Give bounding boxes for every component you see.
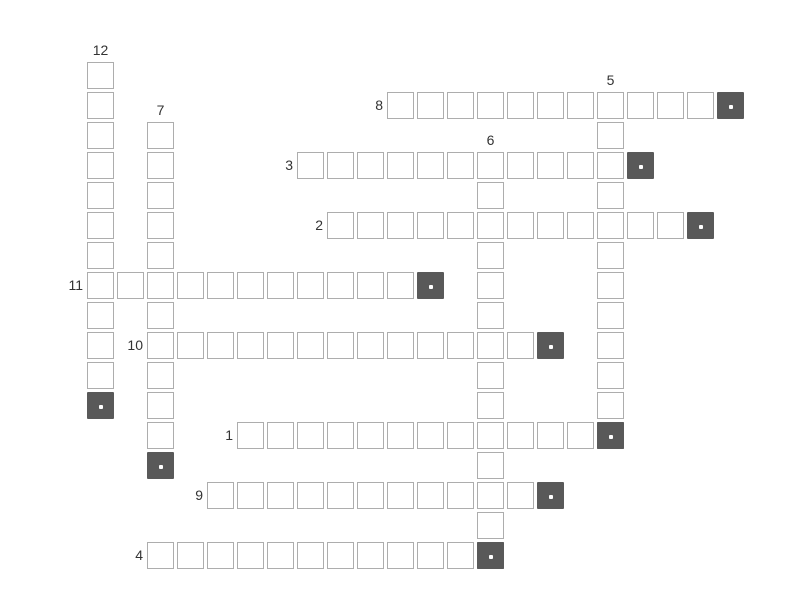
word-7-letter-cell-5[interactable] (147, 242, 174, 269)
word-7-letter-cell-3[interactable] (147, 182, 174, 209)
word-6-letter-cell-8[interactable] (477, 362, 504, 389)
word-1-letter-cell-2[interactable] (267, 422, 294, 449)
word-8-end-marker[interactable] (717, 92, 744, 119)
word-6-letter-cell-3[interactable] (477, 212, 504, 239)
word-8-letter-cell-3[interactable] (447, 92, 474, 119)
word-3-letter-cell-6[interactable] (447, 152, 474, 179)
end-marker-dot-icon (489, 555, 493, 559)
word-10-letter-cell-5[interactable] (267, 332, 294, 359)
clue-number-4: 4 (111, 542, 143, 569)
word-5-letter-cell-4[interactable] (597, 182, 624, 209)
word-9-letter-cell-6[interactable] (357, 482, 384, 509)
word-10-letter-cell-2[interactable] (177, 332, 204, 359)
word-11-letter-cell-2[interactable] (117, 272, 144, 299)
word-8-letter-cell-6[interactable] (537, 92, 564, 119)
clue-number-1: 1 (201, 422, 233, 449)
word-1-letter-cell-3[interactable] (297, 422, 324, 449)
word-6-letter-cell-4[interactable] (477, 242, 504, 269)
word-10-letter-cell-6[interactable] (297, 332, 324, 359)
word-10-letter-cell-8[interactable] (357, 332, 384, 359)
word-3-letter-cell-9[interactable] (537, 152, 564, 179)
word-7-letter-cell-11[interactable] (147, 422, 174, 449)
word-12-letter-cell-5[interactable] (87, 182, 114, 209)
word-8-letter-cell-2[interactable] (417, 92, 444, 119)
word-7-letter-cell-1[interactable] (147, 122, 174, 149)
word-7-letter-cell-9[interactable] (147, 362, 174, 389)
word-9-letter-cell-3[interactable] (267, 482, 294, 509)
word-9-letter-cell-5[interactable] (327, 482, 354, 509)
word-6-letter-cell-9[interactable] (477, 392, 504, 419)
word-11-letter-cell-8[interactable] (297, 272, 324, 299)
word-6-end-marker[interactable] (477, 542, 504, 569)
word-1-letter-cell-11[interactable] (537, 422, 564, 449)
word-3-letter-cell-2[interactable] (327, 152, 354, 179)
word-9-end-marker[interactable] (537, 482, 564, 509)
word-1-letter-cell-10[interactable] (507, 422, 534, 449)
word-11-letter-cell-9[interactable] (327, 272, 354, 299)
clue-number-7: 7 (147, 101, 174, 119)
word-4-letter-cell-8[interactable] (357, 542, 384, 569)
word-1-letter-cell-6[interactable] (387, 422, 414, 449)
word-12-letter-cell-7[interactable] (87, 242, 114, 269)
word-2-letter-cell-1[interactable] (327, 212, 354, 239)
word-5-letter-cell-7[interactable] (597, 272, 624, 299)
word-7-letter-cell-2[interactable] (147, 152, 174, 179)
word-6-letter-cell-1[interactable] (477, 152, 504, 179)
word-5-letter-cell-8[interactable] (597, 302, 624, 329)
word-4-letter-cell-10[interactable] (417, 542, 444, 569)
clue-number-5: 5 (597, 71, 624, 89)
word-1-letter-cell-8[interactable] (447, 422, 474, 449)
word-9-letter-cell-8[interactable] (417, 482, 444, 509)
end-marker-dot-icon (549, 495, 553, 499)
word-10-letter-cell-1[interactable] (147, 332, 174, 359)
end-marker-dot-icon (159, 465, 163, 469)
word-5-letter-cell-3[interactable] (597, 152, 624, 179)
word-3-letter-cell-10[interactable] (567, 152, 594, 179)
word-11-letter-cell-10[interactable] (357, 272, 384, 299)
word-8-letter-cell-5[interactable] (507, 92, 534, 119)
word-2-end-marker[interactable] (687, 212, 714, 239)
word-9-letter-cell-11[interactable] (507, 482, 534, 509)
word-3-end-marker[interactable] (627, 152, 654, 179)
word-4-letter-cell-4[interactable] (237, 542, 264, 569)
word-12-letter-cell-2[interactable] (87, 92, 114, 119)
word-7-letter-cell-4[interactable] (147, 212, 174, 239)
word-12-letter-cell-3[interactable] (87, 122, 114, 149)
word-10-letter-cell-12[interactable] (477, 332, 504, 359)
clue-number-11: 11 (51, 272, 83, 299)
word-1-letter-cell-1[interactable] (237, 422, 264, 449)
word-4-letter-cell-9[interactable] (387, 542, 414, 569)
word-3-letter-cell-8[interactable] (507, 152, 534, 179)
word-3-letter-cell-5[interactable] (417, 152, 444, 179)
word-2-letter-cell-4[interactable] (417, 212, 444, 239)
word-6-letter-cell-11[interactable] (477, 452, 504, 479)
word-4-letter-cell-1[interactable] (147, 542, 174, 569)
word-9-letter-cell-4[interactable] (297, 482, 324, 509)
word-2-letter-cell-2[interactable] (357, 212, 384, 239)
word-2-letter-cell-12[interactable] (657, 212, 684, 239)
word-8-letter-cell-11[interactable] (687, 92, 714, 119)
word-1-letter-cell-7[interactable] (417, 422, 444, 449)
word-10-letter-cell-11[interactable] (447, 332, 474, 359)
word-7-end-marker[interactable] (147, 452, 174, 479)
word-12-letter-cell-4[interactable] (87, 152, 114, 179)
word-5-letter-cell-2[interactable] (597, 122, 624, 149)
clue-number-2: 2 (291, 212, 323, 239)
word-12-letter-cell-8[interactable] (87, 272, 114, 299)
word-11-letter-cell-5[interactable] (207, 272, 234, 299)
word-11-letter-cell-4[interactable] (177, 272, 204, 299)
word-8-letter-cell-7[interactable] (567, 92, 594, 119)
word-10-letter-cell-13[interactable] (507, 332, 534, 359)
clue-number-3: 3 (261, 152, 293, 179)
word-10-letter-cell-10[interactable] (417, 332, 444, 359)
word-6-letter-cell-2[interactable] (477, 182, 504, 209)
end-marker-dot-icon (99, 405, 103, 409)
word-5-end-marker[interactable] (597, 422, 624, 449)
word-4-letter-cell-6[interactable] (297, 542, 324, 569)
word-7-letter-cell-10[interactable] (147, 392, 174, 419)
word-4-letter-cell-5[interactable] (267, 542, 294, 569)
end-marker-dot-icon (429, 285, 433, 289)
word-9-letter-cell-2[interactable] (237, 482, 264, 509)
word-11-letter-cell-11[interactable] (387, 272, 414, 299)
end-marker-dot-icon (729, 105, 733, 109)
word-12-letter-cell-6[interactable] (87, 212, 114, 239)
word-1-letter-cell-5[interactable] (357, 422, 384, 449)
word-2-letter-cell-8[interactable] (537, 212, 564, 239)
word-6-letter-cell-13[interactable] (477, 512, 504, 539)
word-1-letter-cell-12[interactable] (567, 422, 594, 449)
word-5-letter-cell-10[interactable] (597, 362, 624, 389)
word-11-end-marker[interactable] (417, 272, 444, 299)
word-6-letter-cell-5[interactable] (477, 272, 504, 299)
word-9-letter-cell-1[interactable] (207, 482, 234, 509)
clue-number-8: 8 (351, 92, 383, 119)
word-11-letter-cell-3[interactable] (147, 272, 174, 299)
clue-number-9: 9 (171, 482, 203, 509)
end-marker-dot-icon (639, 165, 643, 169)
word-6-letter-cell-6[interactable] (477, 302, 504, 329)
word-5-letter-cell-5[interactable] (597, 212, 624, 239)
end-marker-dot-icon (699, 225, 703, 229)
word-12-letter-cell-1[interactable] (87, 62, 114, 89)
word-11-letter-cell-6[interactable] (237, 272, 264, 299)
word-2-letter-cell-11[interactable] (627, 212, 654, 239)
clue-number-12: 12 (87, 41, 114, 59)
word-12-end-marker[interactable] (87, 392, 114, 419)
word-10-letter-cell-4[interactable] (237, 332, 264, 359)
word-9-letter-cell-9[interactable] (447, 482, 474, 509)
word-10-letter-cell-7[interactable] (327, 332, 354, 359)
word-2-letter-cell-3[interactable] (387, 212, 414, 239)
end-marker-dot-icon (609, 435, 613, 439)
word-3-letter-cell-3[interactable] (357, 152, 384, 179)
word-3-letter-cell-4[interactable] (387, 152, 414, 179)
word-5-letter-cell-6[interactable] (597, 242, 624, 269)
end-marker-dot-icon (549, 345, 553, 349)
word-8-letter-cell-9[interactable] (627, 92, 654, 119)
word-10-end-marker[interactable] (537, 332, 564, 359)
word-5-letter-cell-11[interactable] (597, 392, 624, 419)
word-2-letter-cell-7[interactable] (507, 212, 534, 239)
word-4-letter-cell-11[interactable] (447, 542, 474, 569)
word-4-letter-cell-2[interactable] (177, 542, 204, 569)
word-9-letter-cell-7[interactable] (387, 482, 414, 509)
word-6-letter-cell-10[interactable] (477, 422, 504, 449)
word-8-letter-cell-1[interactable] (387, 92, 414, 119)
word-8-letter-cell-10[interactable] (657, 92, 684, 119)
word-8-letter-cell-4[interactable] (477, 92, 504, 119)
clue-number-6: 6 (477, 131, 504, 149)
word-12-letter-cell-9[interactable] (87, 302, 114, 329)
word-2-letter-cell-9[interactable] (567, 212, 594, 239)
word-11-letter-cell-7[interactable] (267, 272, 294, 299)
word-5-letter-cell-9[interactable] (597, 332, 624, 359)
word-10-letter-cell-9[interactable] (387, 332, 414, 359)
word-9-letter-cell-10[interactable] (477, 482, 504, 509)
word-1-letter-cell-4[interactable] (327, 422, 354, 449)
word-4-letter-cell-3[interactable] (207, 542, 234, 569)
word-2-letter-cell-5[interactable] (447, 212, 474, 239)
word-4-letter-cell-7[interactable] (327, 542, 354, 569)
word-10-letter-cell-3[interactable] (207, 332, 234, 359)
clue-number-10: 10 (111, 332, 143, 359)
word-8-letter-cell-8[interactable] (597, 92, 624, 119)
word-12-letter-cell-10[interactable] (87, 332, 114, 359)
word-12-letter-cell-11[interactable] (87, 362, 114, 389)
word-3-letter-cell-1[interactable] (297, 152, 324, 179)
word-7-letter-cell-7[interactable] (147, 302, 174, 329)
crossword-board: 123456789101112 (0, 0, 800, 600)
